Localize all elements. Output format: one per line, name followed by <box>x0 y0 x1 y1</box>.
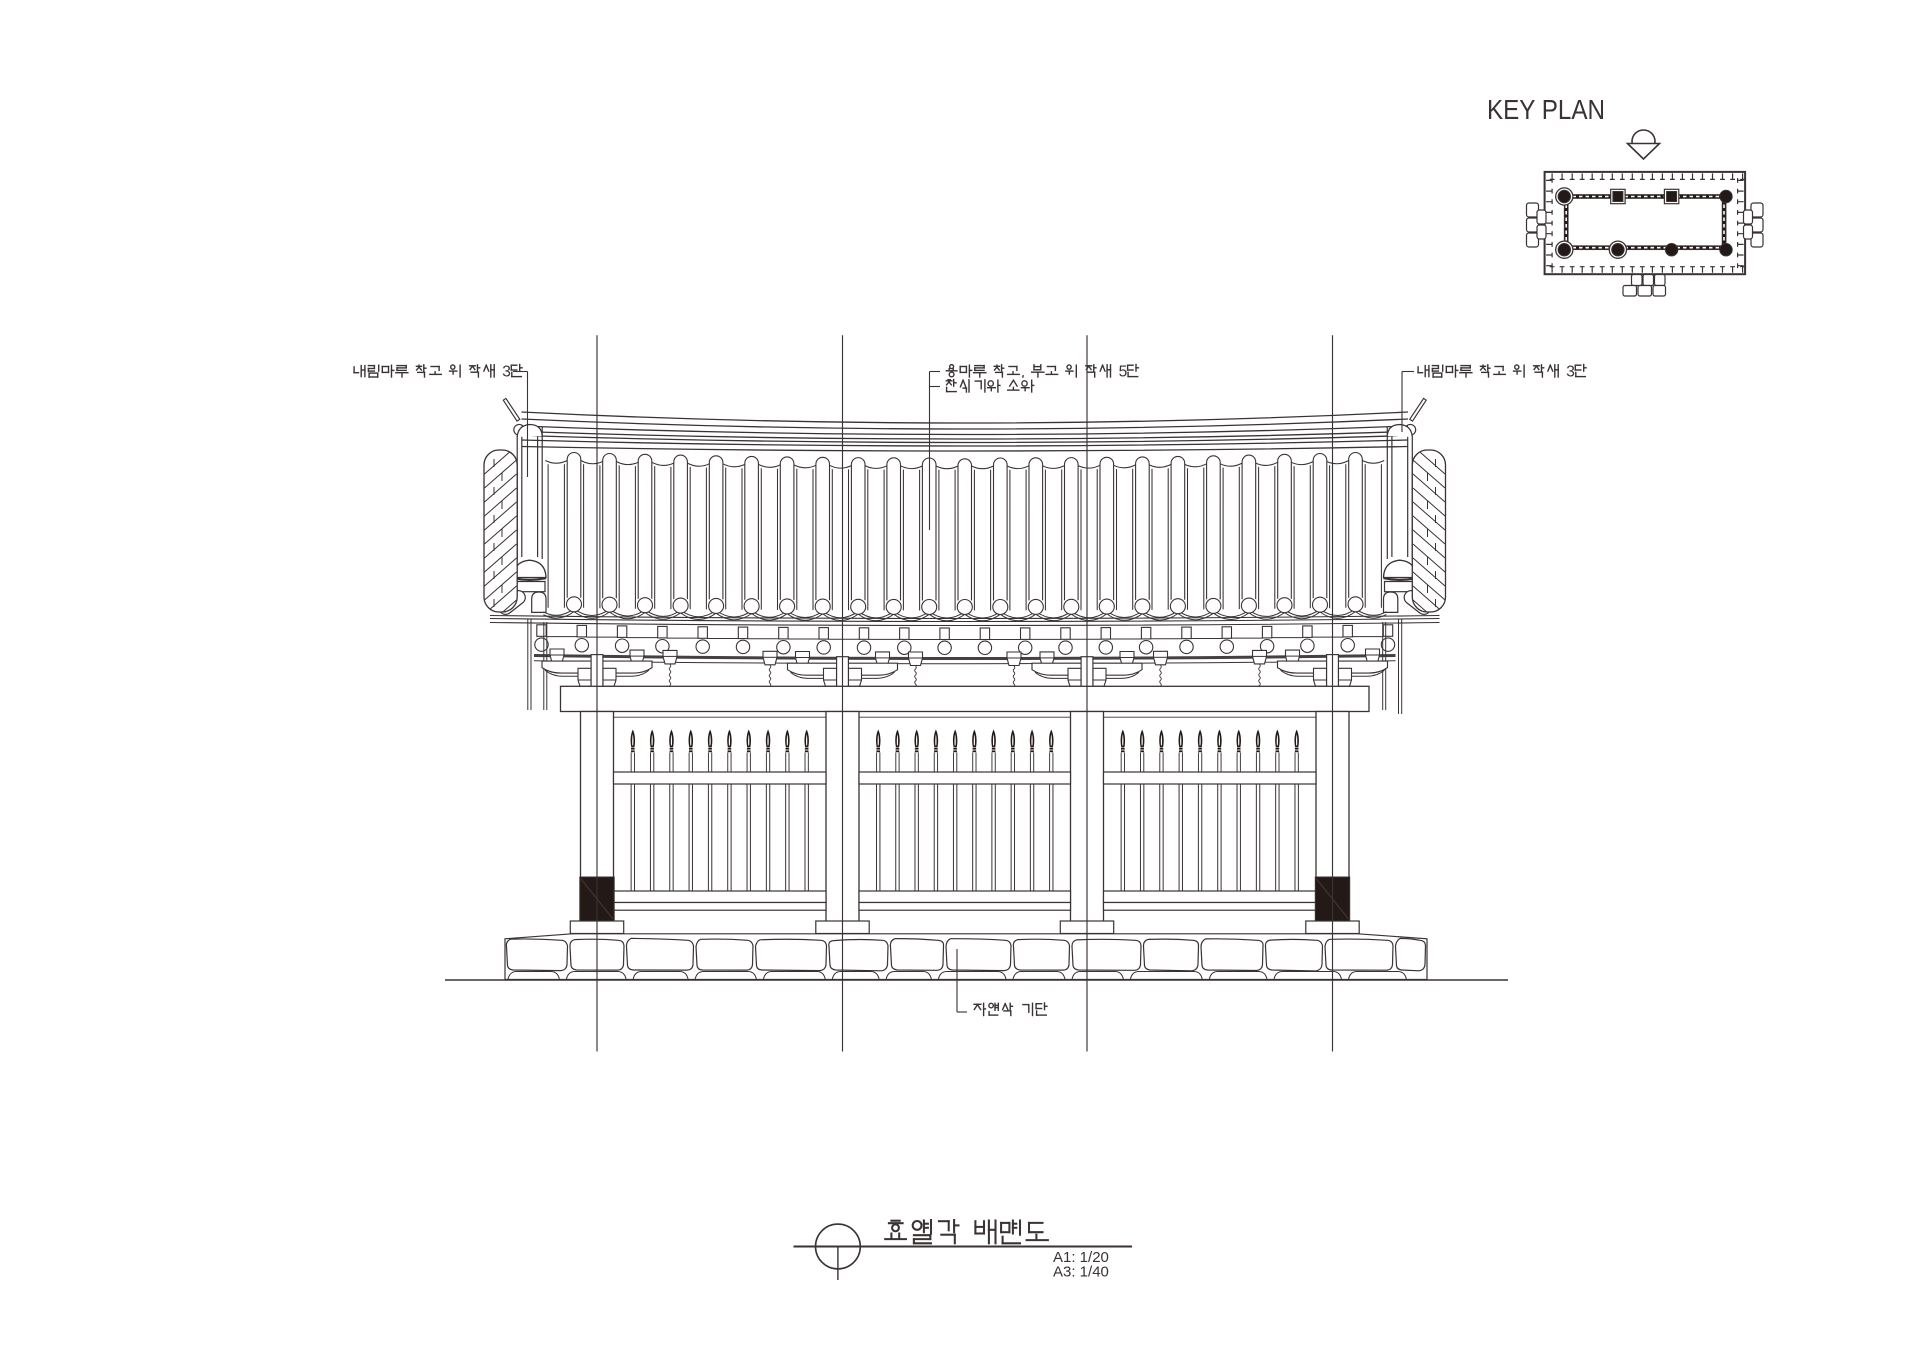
svg-text:3: 3 <box>1566 364 1575 381</box>
svg-text:3: 3 <box>502 364 511 381</box>
svg-text:A3: 1/40: A3: 1/40 <box>1053 1264 1109 1281</box>
svg-text:KEY PLAN: KEY PLAN <box>1487 94 1605 125</box>
svg-text:5: 5 <box>1119 364 1128 381</box>
